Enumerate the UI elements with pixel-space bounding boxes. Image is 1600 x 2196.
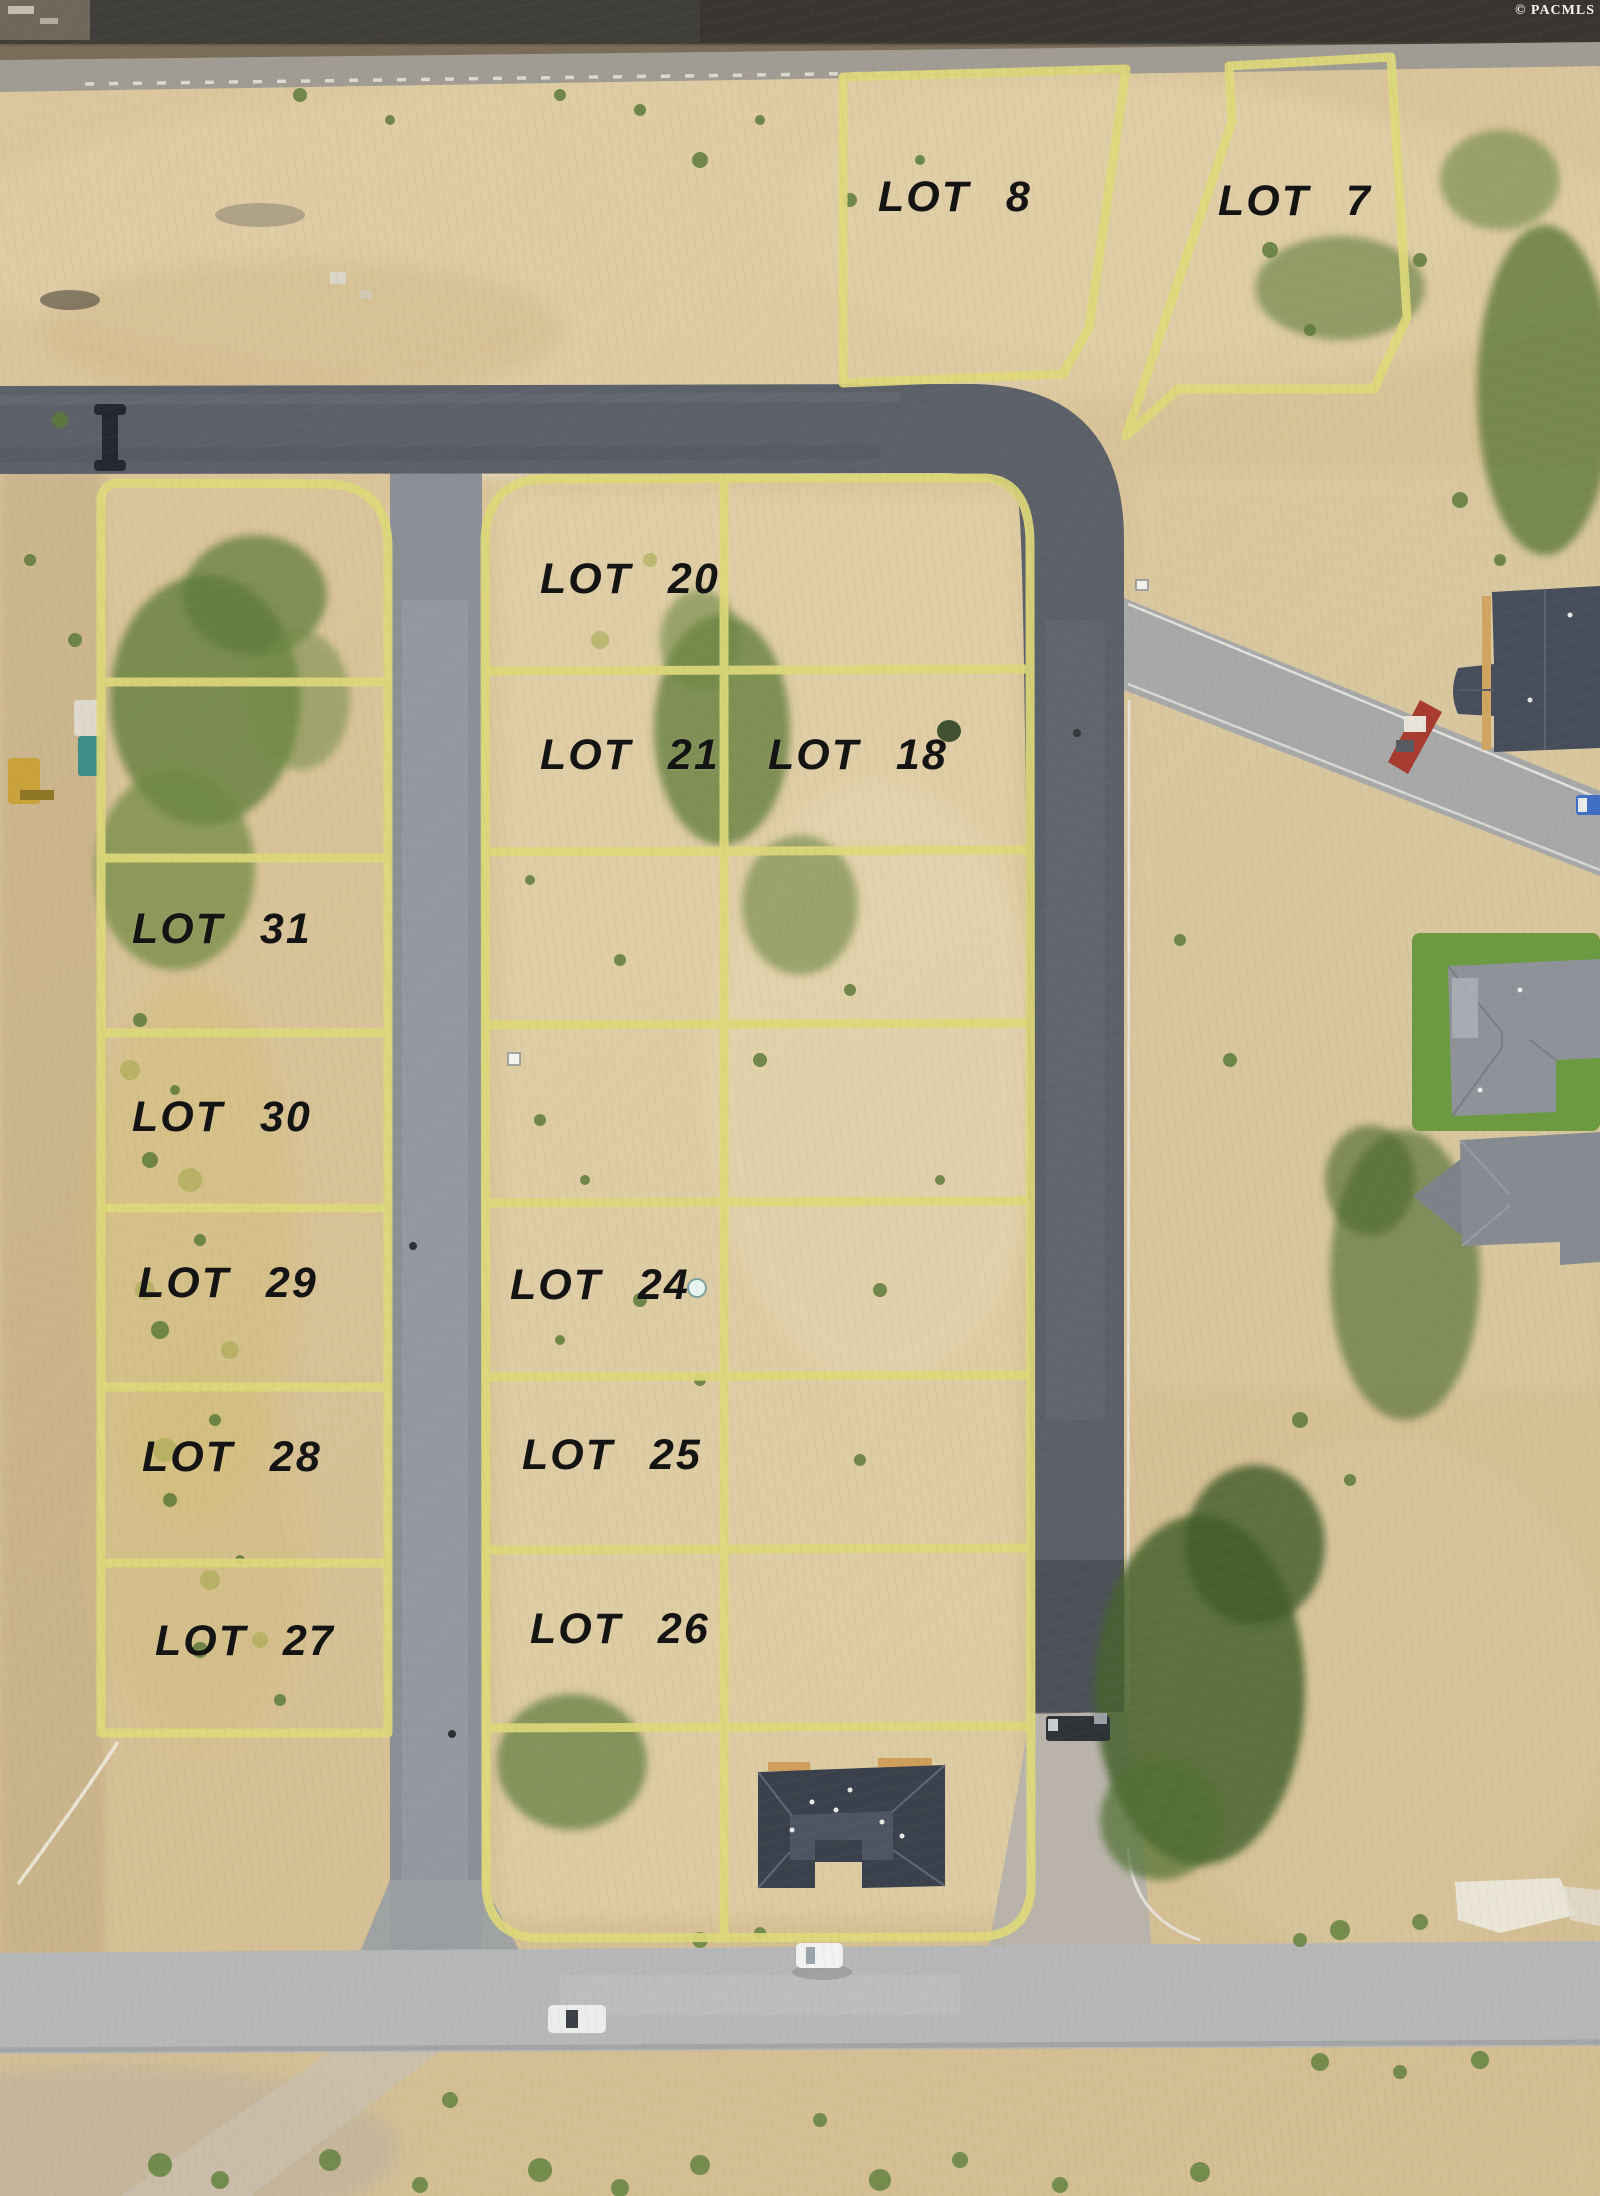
lot-7-label: LOT 7 <box>1218 180 1372 223</box>
lot-31-label: LOT 31 <box>132 908 312 951</box>
white-car <box>796 1943 843 1968</box>
lot-21-label: LOT 21 <box>540 734 720 777</box>
lot-29-label: LOT 29 <box>138 1262 318 1305</box>
lot-25-label: LOT 25 <box>522 1434 702 1477</box>
lot-20-label: LOT 20 <box>540 558 720 601</box>
lot-26-label: LOT 26 <box>530 1608 710 1651</box>
utility-box <box>508 1053 520 1065</box>
mls-watermark: © PACMLS <box>1515 3 1595 19</box>
lot-18-label: LOT 18 <box>768 734 948 777</box>
lot-27-label: LOT 27 <box>155 1620 335 1663</box>
lot-28-label: LOT 28 <box>142 1436 322 1479</box>
utility-box <box>1136 580 1148 590</box>
lot-8-label: LOT 8 <box>878 176 1032 219</box>
lot-30-label: LOT 30 <box>132 1096 312 1139</box>
water-tank <box>688 1279 706 1297</box>
aerial-lot-map-photo: LOT 8 LOT 7 LOT 20 LOT 21 LOT 18 LOT 31 … <box>0 0 1600 2196</box>
lot-24-label: LOT 24 <box>510 1264 690 1307</box>
house-right-2 <box>1412 933 1600 1131</box>
